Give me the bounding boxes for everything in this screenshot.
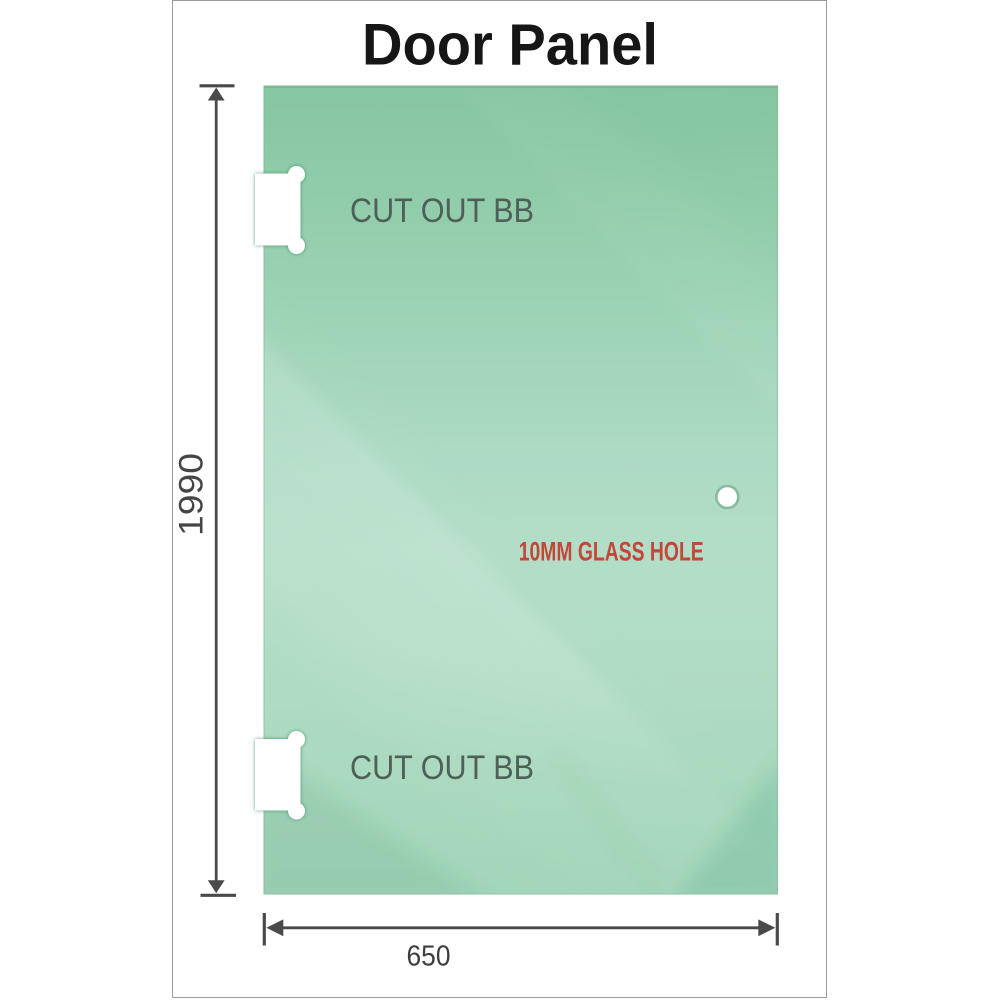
svg-text:10MM GLASS HOLE: 10MM GLASS HOLE <box>519 537 704 567</box>
svg-text:CUT OUT BB: CUT OUT BB <box>350 749 534 787</box>
svg-text:CUT OUT BB: CUT OUT BB <box>350 192 534 230</box>
svg-text:650: 650 <box>407 941 451 973</box>
svg-text:Door Panel: Door Panel <box>362 13 658 78</box>
svg-text:1990: 1990 <box>173 453 211 536</box>
